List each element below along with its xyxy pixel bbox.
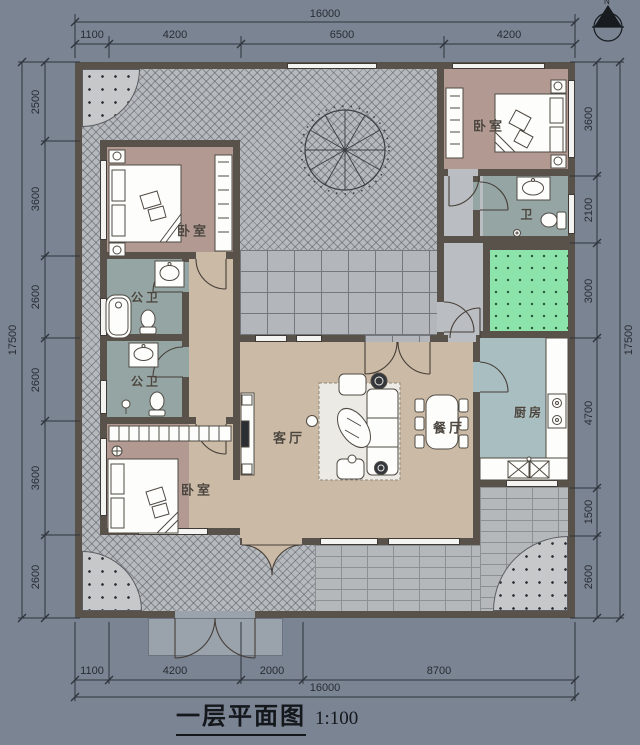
drawing-title: 一层平面图 1:100 — [176, 696, 358, 736]
dim-right-overall: 17500 — [623, 325, 635, 356]
door-opening — [437, 302, 444, 332]
dim-top-seg: 6500 — [330, 29, 354, 41]
door-opening — [473, 362, 480, 392]
dim-bottom-overall: 16000 — [310, 682, 341, 694]
room-label-kitchen: 厨房 — [514, 404, 544, 421]
dim-bottom-seg: 4200 — [163, 665, 187, 677]
dim-left-seg: 3600 — [30, 187, 42, 211]
room-label-bath-top-right: 卫 — [520, 206, 535, 223]
dim-right-seg: 2600 — [583, 565, 595, 589]
dim-left-seg: 2600 — [30, 565, 42, 589]
wall-segment — [473, 338, 480, 487]
window — [296, 335, 322, 342]
window — [320, 538, 378, 545]
window — [100, 380, 107, 414]
room-label-bedroom-left-top: 卧室 — [177, 221, 209, 240]
dim-right-seg: 3600 — [583, 107, 595, 131]
room-label-bath-left-lower: 公卫 — [131, 373, 161, 390]
dim-right-seg: 2100 — [583, 198, 595, 222]
door-opening — [233, 480, 240, 528]
window — [287, 63, 377, 69]
wall-segment — [100, 140, 240, 147]
title-text: 一层平面图 — [176, 696, 306, 736]
door-opening — [196, 252, 226, 259]
door-opening — [196, 417, 226, 424]
wall-segment — [483, 243, 490, 338]
title-scale: 1:100 — [315, 708, 358, 730]
room-label-bath-left-upper: 公卫 — [131, 289, 161, 306]
compass-north-label: N — [604, 0, 610, 6]
window — [506, 480, 558, 487]
wall-segment — [483, 243, 568, 250]
dim-right-seg: 3000 — [583, 279, 595, 303]
door-opening — [182, 347, 189, 377]
window — [100, 438, 107, 516]
north-compass-icon — [592, 5, 624, 41]
wall-segment — [233, 140, 240, 535]
room-label-dining: 餐厅 — [433, 418, 465, 437]
wall-segment — [473, 487, 480, 545]
main-gate-opening — [175, 611, 255, 618]
dim-top-seg: 4200 — [497, 29, 521, 41]
dim-top-seg: 4200 — [163, 29, 187, 41]
door-opening — [448, 169, 478, 176]
wall-segment — [444, 236, 568, 243]
dim-bottom-seg: 1100 — [80, 665, 104, 677]
wall-segment — [480, 331, 568, 338]
entry-stoop — [148, 618, 283, 656]
room-label-bedroom-top-right: 卧室 — [473, 116, 505, 135]
door-opening — [448, 335, 476, 342]
room-label-bedroom-left-bottom: 卧室 — [181, 480, 213, 499]
dim-bottom-seg: 2000 — [260, 665, 284, 677]
room-label-living: 客厅 — [273, 428, 305, 447]
window — [568, 80, 575, 158]
dim-left-seg: 3600 — [30, 466, 42, 490]
window — [388, 538, 460, 545]
dim-bottom-seg: 8700 — [427, 665, 451, 677]
window — [100, 160, 107, 240]
dim-right-seg: 1500 — [583, 500, 595, 524]
dim-left-overall: 17500 — [7, 325, 19, 356]
window — [568, 194, 575, 234]
floor-plan-sheet: 16000 1100 4200 6500 4200 1100 4200 2000… — [0, 0, 640, 745]
door-opening — [182, 262, 189, 292]
dim-left-seg: 2600 — [30, 368, 42, 392]
dim-left-seg: 2600 — [30, 285, 42, 309]
door-opening — [365, 335, 430, 342]
door-opening — [242, 538, 302, 545]
window — [138, 528, 208, 535]
window — [255, 335, 287, 342]
dim-left-seg: 2500 — [30, 90, 42, 114]
door-opening — [473, 182, 480, 210]
dim-right-seg: 4700 — [583, 401, 595, 425]
window — [100, 298, 107, 336]
window — [452, 63, 545, 69]
dim-top-overall: 16000 — [310, 8, 341, 20]
wall-segment — [107, 334, 182, 341]
dim-top-seg: 1100 — [80, 29, 104, 41]
